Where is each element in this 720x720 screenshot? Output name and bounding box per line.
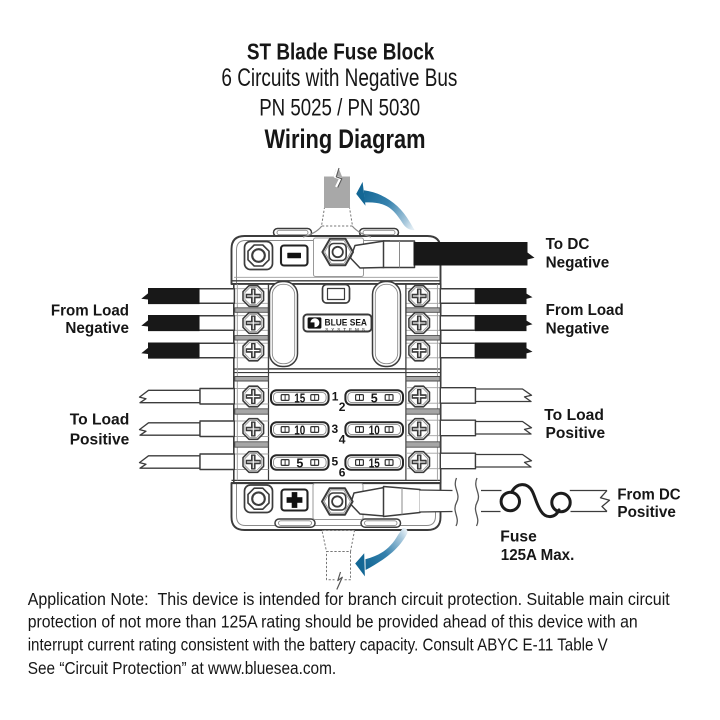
svg-text:15: 15 xyxy=(294,391,305,405)
svg-text:To DC: To DC xyxy=(546,236,590,253)
svg-text:Fuse: Fuse xyxy=(500,529,537,546)
svg-text:3: 3 xyxy=(332,422,339,436)
svg-text:10: 10 xyxy=(369,423,380,437)
svg-text:Positive: Positive xyxy=(70,431,130,448)
svg-text:10: 10 xyxy=(294,423,305,437)
svg-text:interrupt current rating consi: interrupt current rating consistent with… xyxy=(28,635,608,655)
svg-text:4: 4 xyxy=(339,432,346,446)
svg-text:Negative: Negative xyxy=(546,255,610,272)
svg-text:15: 15 xyxy=(369,456,380,470)
svg-text:ST Blade Fuse Block: ST Blade Fuse Block xyxy=(247,39,435,65)
svg-text:From Load: From Load xyxy=(51,302,129,319)
svg-text:To Load: To Load xyxy=(544,407,604,424)
svg-text:To Load: To Load xyxy=(70,411,130,428)
svg-text:From Load: From Load xyxy=(546,302,624,319)
svg-text:Positive: Positive xyxy=(546,425,606,442)
svg-text:6 Circuits with Negative Bus: 6 Circuits with Negative Bus xyxy=(221,64,457,92)
svg-text:2: 2 xyxy=(339,400,346,414)
svg-text:5: 5 xyxy=(332,455,339,469)
svg-text:Wiring Diagram: Wiring Diagram xyxy=(265,124,426,154)
svg-text:Application Note: This device: Application Note: This device is intende… xyxy=(28,589,670,609)
svg-text:SYSTEMS: SYSTEMS xyxy=(325,327,368,332)
svg-text:See “Circuit Protection” at ww: See “Circuit Protection” at www.bluesea.… xyxy=(28,658,337,678)
svg-text:Negative: Negative xyxy=(65,320,129,337)
svg-text:6: 6 xyxy=(339,465,346,479)
svg-text:5: 5 xyxy=(296,456,303,470)
svg-text:5: 5 xyxy=(371,391,378,405)
svg-text:protection of not more than 12: protection of not more than 125A rating … xyxy=(28,612,638,632)
svg-text:Negative: Negative xyxy=(546,320,610,337)
svg-text:From DC: From DC xyxy=(617,486,681,503)
svg-text:125A Max.: 125A Max. xyxy=(501,547,575,564)
svg-text:PN 5025 / PN 5030: PN 5025 / PN 5030 xyxy=(259,95,420,122)
svg-text:1: 1 xyxy=(332,389,339,403)
svg-text:Positive: Positive xyxy=(617,504,676,521)
